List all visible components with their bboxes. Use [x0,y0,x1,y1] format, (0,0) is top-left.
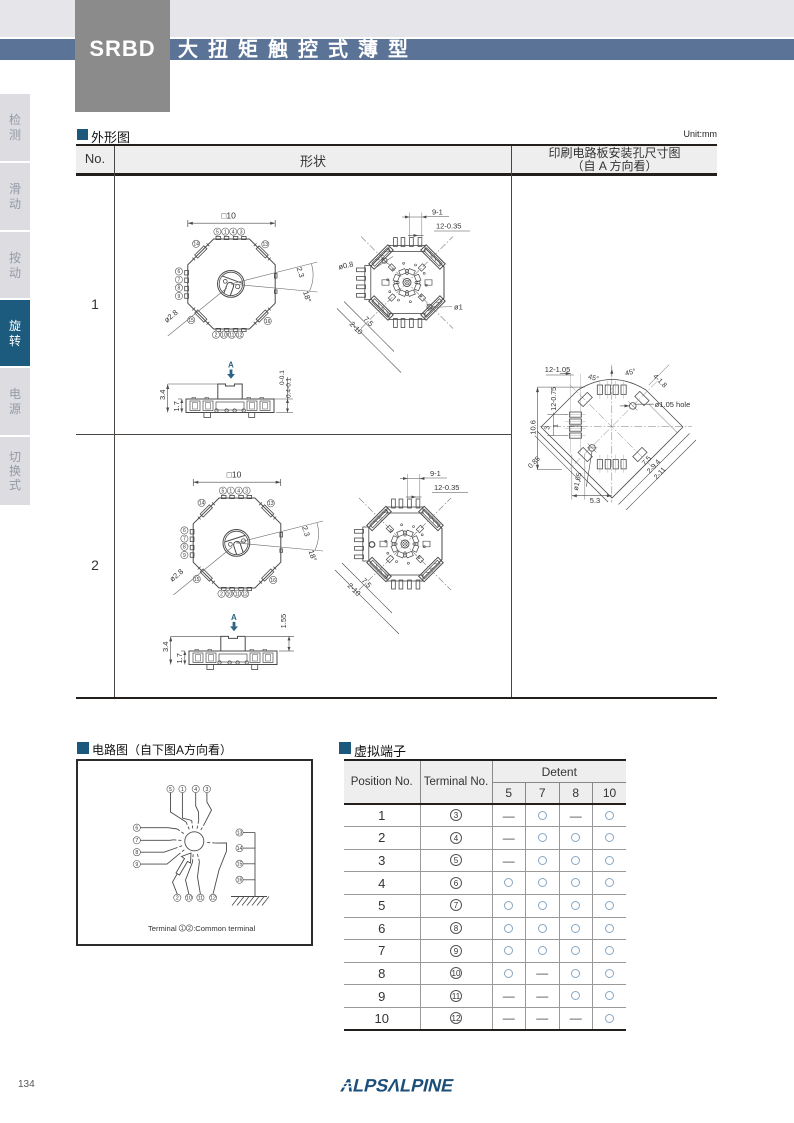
svg-text:1.55: 1.55 [279,614,288,629]
svg-text:9: 9 [183,553,186,559]
svg-text:11: 11 [229,333,234,339]
svg-text:11: 11 [198,896,203,902]
svg-text:13: 13 [237,830,243,836]
svg-text:A: A [231,613,237,622]
svg-text:8: 8 [183,545,186,551]
svg-text:8: 8 [135,850,138,856]
svg-text:12-0.35: 12-0.35 [434,483,459,492]
svg-text:2-10: 2-10 [348,320,365,337]
svg-text:3: 3 [544,426,551,430]
svg-text:12: 12 [210,896,216,902]
svg-text:□10: □10 [221,211,236,221]
svg-text:2: 2 [188,926,191,932]
svg-text:2: 2 [215,333,218,339]
svg-text:Terminal: Terminal [148,924,177,933]
svg-text:14: 14 [199,501,205,507]
svg-text:10.6: 10.6 [528,420,537,435]
svg-text:1.7: 1.7 [172,401,181,411]
svg-text:2: 2 [220,592,223,598]
svg-text:4-1.8: 4-1.8 [651,373,667,389]
svg-text:13: 13 [268,501,274,507]
svg-text:0.85: 0.85 [527,455,542,470]
svg-text:45°: 45° [587,373,599,383]
svg-text:2-10: 2-10 [346,581,363,598]
svg-text:3: 3 [245,488,248,494]
svg-text:4: 4 [194,787,197,793]
svg-text:1: 1 [181,787,184,793]
svg-text:7: 7 [178,277,181,283]
svg-text:10: 10 [221,333,227,339]
svg-text:10: 10 [186,896,192,902]
svg-text:3.4: 3.4 [158,390,167,400]
svg-text:ø2.8: ø2.8 [168,567,185,584]
svg-text:10: 10 [227,592,233,598]
svg-text:□10: □10 [227,470,242,480]
svg-text:0.4-0.1: 0.4-0.1 [286,377,293,398]
svg-text:16: 16 [237,878,243,884]
svg-text:7: 7 [183,536,186,542]
svg-text:ø1.05 hole: ø1.05 hole [655,400,690,409]
svg-text:18°: 18° [301,290,313,304]
svg-text:6: 6 [183,528,186,534]
svg-text:2: 2 [176,896,179,902]
svg-text:14: 14 [237,846,243,852]
svg-text:16: 16 [265,319,271,325]
svg-text:7: 7 [135,838,138,844]
svg-text:ø2.8: ø2.8 [162,308,179,325]
svg-text:11: 11 [235,592,240,598]
svg-text:1.7: 1.7 [175,653,184,663]
svg-text:5.3: 5.3 [590,496,600,505]
svg-text:ø0.8: ø0.8 [338,260,355,272]
svg-text:3: 3 [240,229,243,235]
svg-text:16: 16 [270,578,276,584]
svg-text:18°: 18° [307,549,319,563]
svg-text:2.3: 2.3 [300,525,312,538]
svg-text:3.4: 3.4 [161,642,170,652]
svg-text:5: 5 [169,787,172,793]
svg-text:A: A [228,361,234,370]
svg-text:8: 8 [178,286,181,292]
svg-text:14: 14 [193,242,199,248]
svg-text:5: 5 [216,229,219,235]
svg-text:9-1: 9-1 [432,208,443,217]
svg-text:15: 15 [237,862,243,868]
svg-text:ø1: ø1 [454,303,463,312]
svg-text:1: 1 [552,424,559,428]
svg-text:3: 3 [205,787,208,793]
svg-text:4: 4 [232,229,235,235]
svg-text:5: 5 [222,488,225,494]
svg-text:12: 12 [242,592,248,598]
svg-text:6: 6 [178,269,181,275]
svg-text:1: 1 [181,926,184,932]
svg-text:9: 9 [178,294,181,300]
svg-text:45°: 45° [624,367,636,377]
svg-text:12-0.35: 12-0.35 [436,222,461,231]
svg-text:ΛLPSΛLPINE: ΛLPSΛLPINE [339,1075,456,1096]
svg-text:12: 12 [237,333,243,339]
svg-text:12-0.75: 12-0.75 [551,387,558,411]
svg-text:0-0.1: 0-0.1 [279,370,286,385]
svg-text::Common terminal: :Common terminal [193,924,255,933]
svg-text:13: 13 [263,242,269,248]
svg-text:1: 1 [224,229,227,235]
svg-text:1: 1 [229,488,232,494]
svg-text:6: 6 [135,826,138,832]
svg-text:2.3: 2.3 [295,266,307,279]
svg-text:ø1.05: ø1.05 [573,472,584,491]
svg-text:9-1: 9-1 [430,469,441,478]
svg-text:9: 9 [135,862,138,868]
svg-text:4: 4 [237,488,240,494]
